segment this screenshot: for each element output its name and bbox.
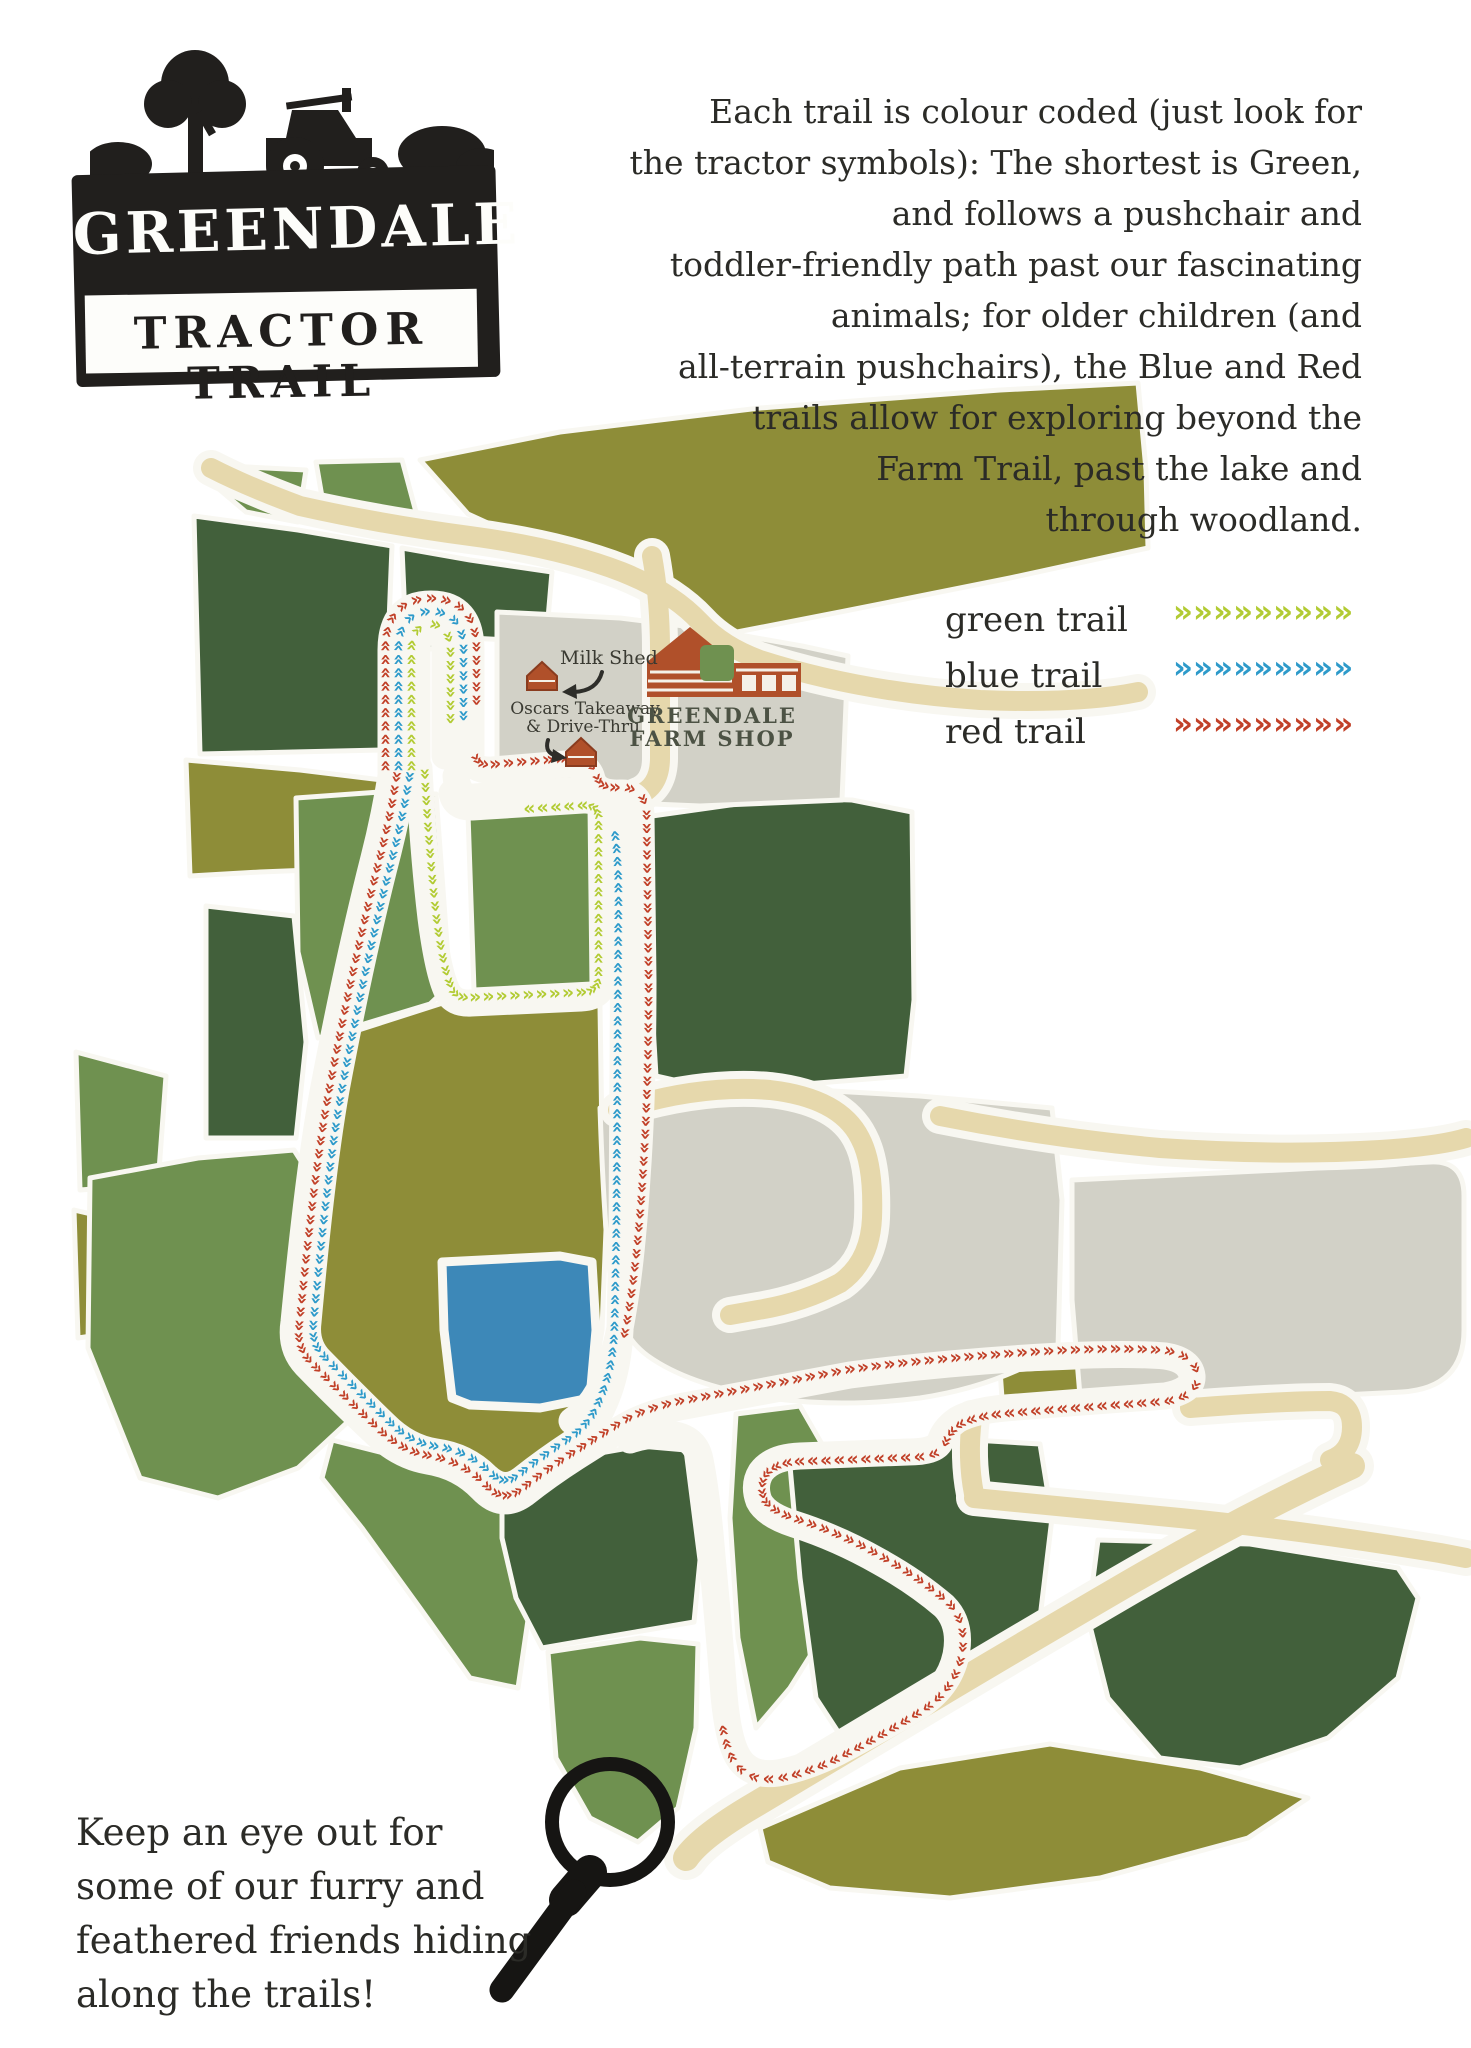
logo-subtitle: TRACTOR TRAIL xyxy=(85,303,479,412)
logo-title: GREENDALE xyxy=(72,191,498,268)
shop-window xyxy=(742,675,756,691)
lake xyxy=(442,1256,596,1408)
farm-shop-label-line1: GREENDALE xyxy=(627,703,797,728)
farm-shop-label-line2: FARM SHOP xyxy=(629,726,794,751)
shop-window xyxy=(762,675,776,691)
shop-window xyxy=(782,675,796,691)
milk-shed-label: Milk Shed xyxy=(560,647,658,669)
shop-bush xyxy=(700,645,734,681)
field xyxy=(194,516,392,754)
logo-banner: GREENDALE TRACTOR TRAIL xyxy=(71,165,500,387)
logo-illustration xyxy=(90,46,494,184)
legend-row-green: green trail »»»»»»»»» xyxy=(945,596,1425,652)
green-trail-swatch: »»»»»»»»» xyxy=(1173,594,1353,630)
takeaway-label-line2: & Drive-Thru xyxy=(526,717,640,737)
legend-row-red: red trail »»»»»»»»» xyxy=(945,708,1425,764)
field xyxy=(548,1638,698,1842)
trail-legend: green trail »»»»»»»»» blue trail »»»»»»»… xyxy=(945,596,1425,764)
red-trail-label: red trail xyxy=(945,712,1086,752)
green-trail-label: green trail xyxy=(945,600,1128,640)
footer-note: Keep an eye out for some of our furry an… xyxy=(76,1806,556,2022)
intro-paragraph: Each trail is colour coded (just look fo… xyxy=(540,86,1362,545)
field xyxy=(206,906,306,1138)
blue-trail-label: blue trail xyxy=(945,656,1102,696)
road xyxy=(1190,1401,1352,1460)
red-trail-swatch: »»»»»»»»» xyxy=(1173,706,1353,742)
field xyxy=(648,798,914,1086)
field xyxy=(468,806,592,990)
blue-trail-swatch: »»»»»»»»» xyxy=(1173,650,1353,686)
tree-icon xyxy=(144,50,246,182)
logo-subtitle-banner: TRACTOR TRAIL xyxy=(85,289,478,374)
greendale-logo: GREENDALE TRACTOR TRAIL xyxy=(72,40,512,360)
legend-row-blue: blue trail »»»»»»»»» xyxy=(945,652,1425,708)
